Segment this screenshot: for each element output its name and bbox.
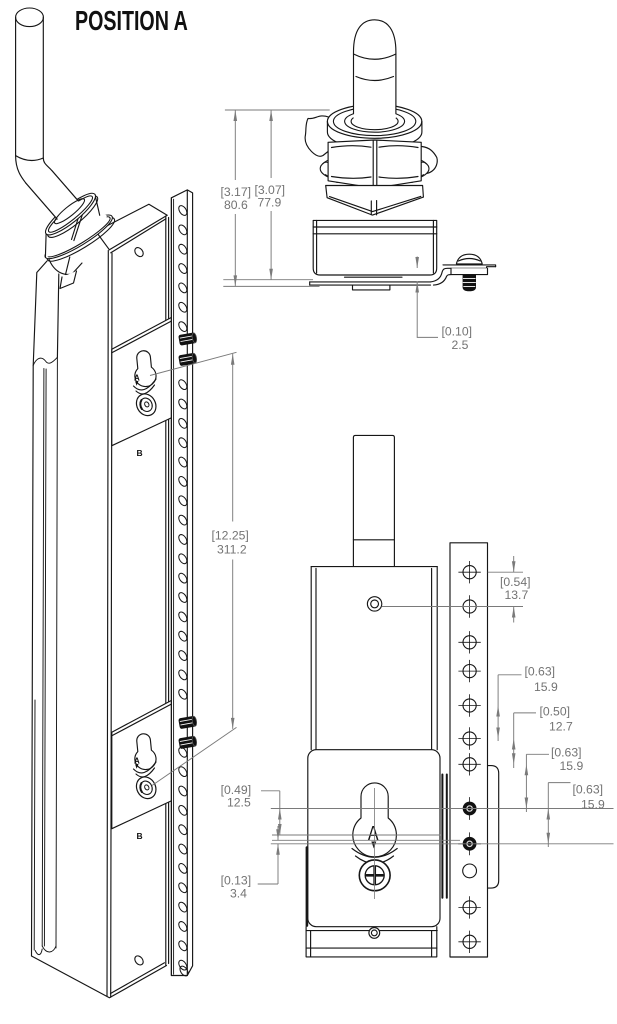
- svg-text:15.9: 15.9: [560, 759, 584, 773]
- svg-text:[0.63]: [0.63]: [551, 746, 582, 760]
- svg-text:13.7: 13.7: [505, 588, 529, 602]
- svg-text:311.2: 311.2: [217, 543, 247, 557]
- svg-text:[0.13]: [0.13]: [221, 874, 252, 888]
- svg-text:12.5: 12.5: [227, 796, 251, 810]
- svg-text:[12.25]: [12.25]: [212, 529, 249, 543]
- svg-text:15.9: 15.9: [534, 680, 558, 694]
- svg-text:POSITION A: POSITION A: [75, 6, 188, 37]
- svg-text:3.4: 3.4: [230, 887, 247, 901]
- svg-text:[0.10]: [0.10]: [442, 324, 473, 338]
- svg-text:A: A: [368, 822, 379, 845]
- svg-text:[0.63]: [0.63]: [525, 665, 556, 679]
- svg-text:B: B: [137, 448, 143, 458]
- svg-text:B: B: [137, 831, 143, 841]
- svg-text:77.9: 77.9: [258, 196, 282, 210]
- svg-text:2.5: 2.5: [452, 338, 469, 352]
- svg-text:[0.63]: [0.63]: [573, 783, 604, 797]
- svg-text:12.7: 12.7: [549, 720, 573, 734]
- svg-text:15.9: 15.9: [581, 798, 605, 812]
- svg-text:[0.50]: [0.50]: [540, 705, 571, 719]
- svg-text:[0.54]: [0.54]: [500, 575, 531, 589]
- svg-text:80.6: 80.6: [224, 198, 248, 212]
- svg-text:[3.17]: [3.17]: [221, 185, 252, 199]
